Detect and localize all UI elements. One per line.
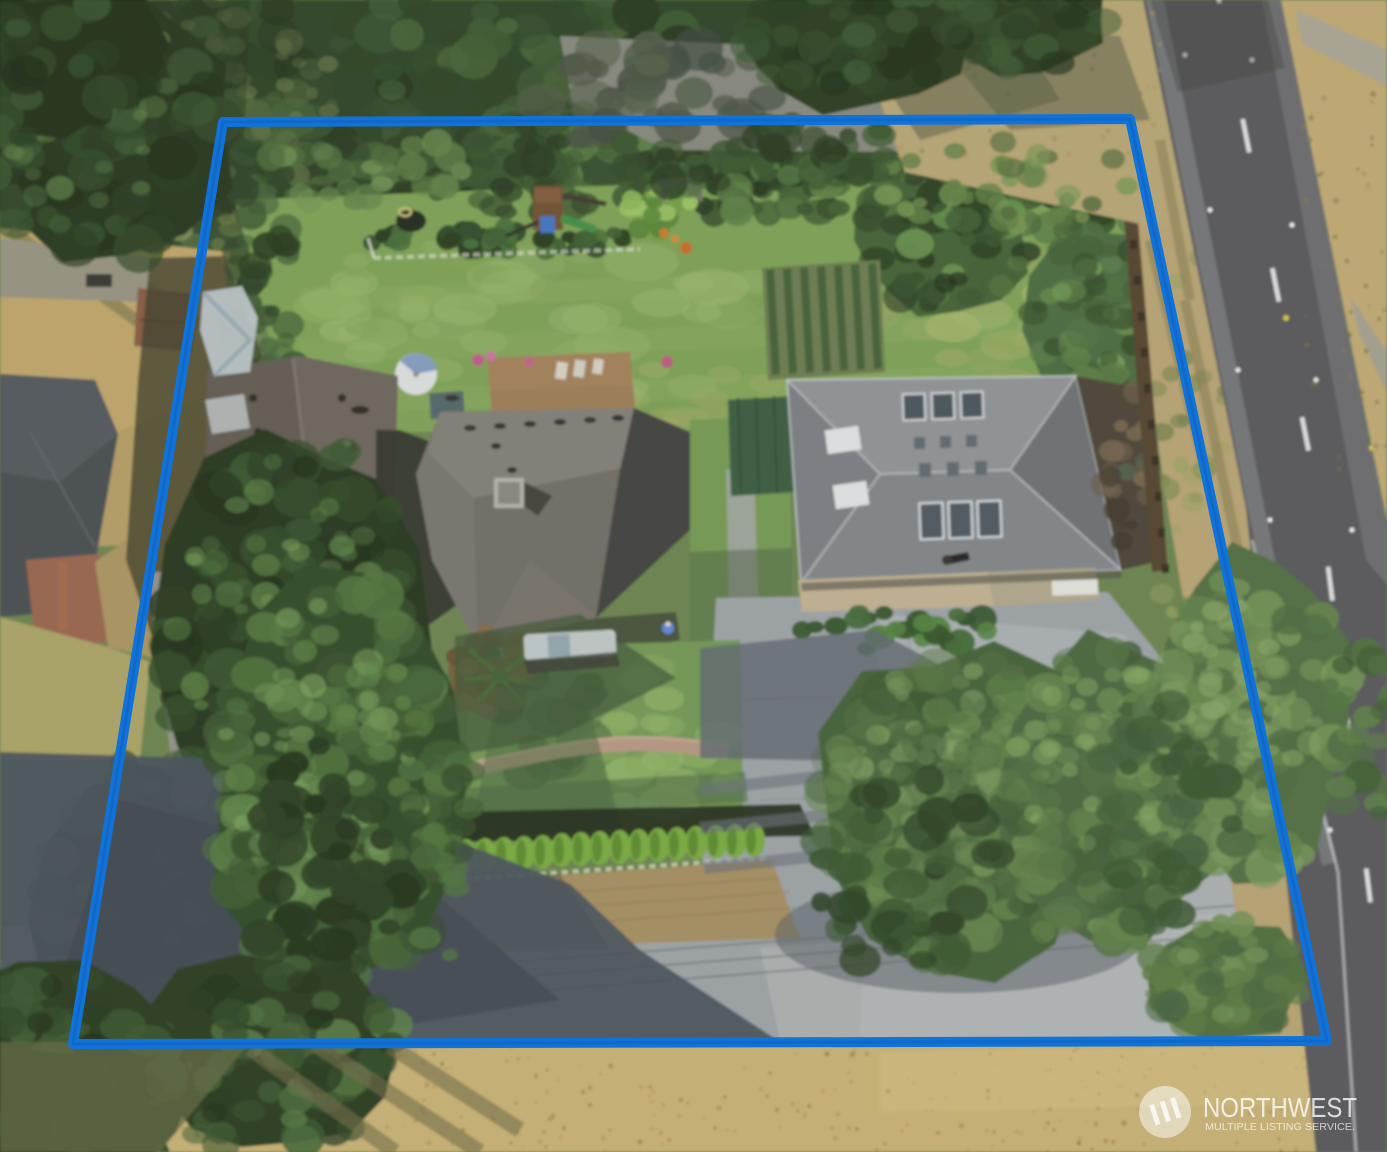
svg-text:NORTHWEST: NORTHWEST bbox=[1203, 1092, 1357, 1123]
svg-text:MULTIPLE LISTING SERVICE.: MULTIPLE LISTING SERVICE. bbox=[1205, 1121, 1355, 1133]
